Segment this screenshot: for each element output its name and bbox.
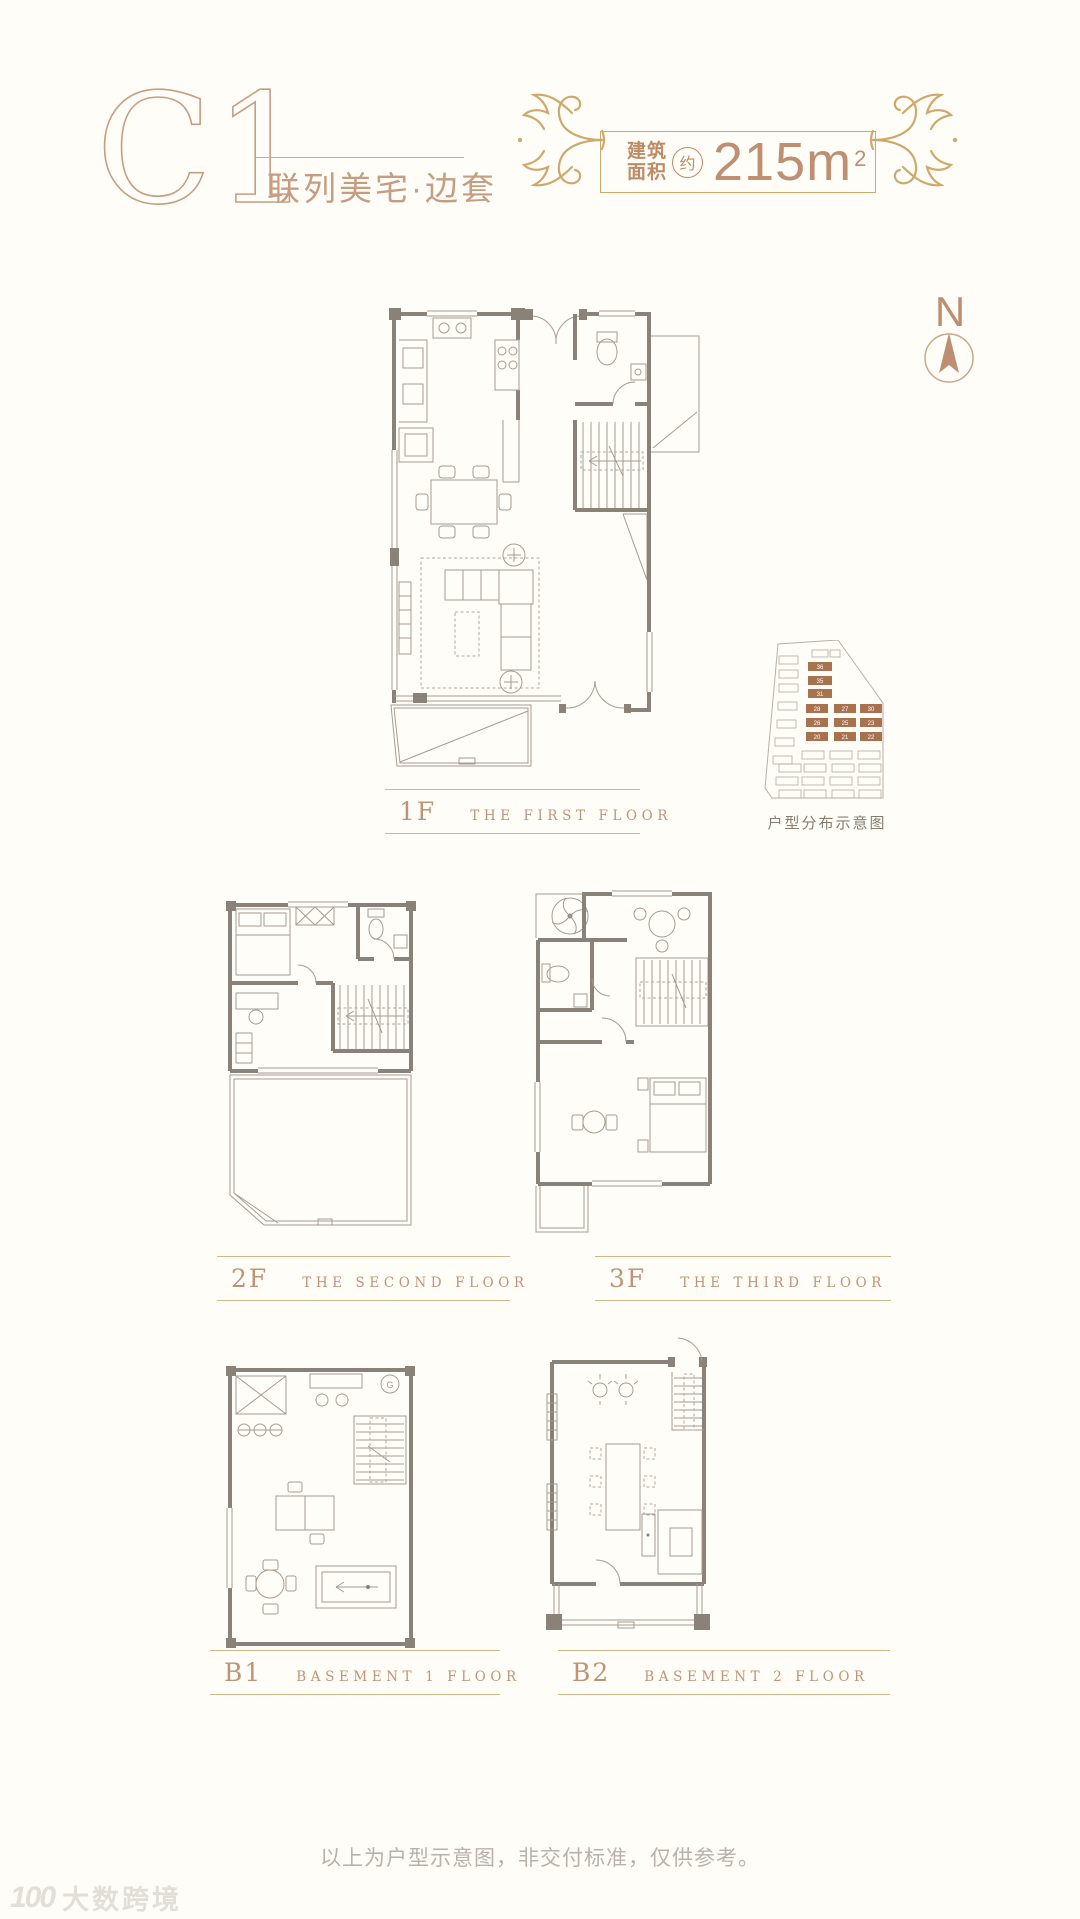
floor-name: THE SECOND FLOOR <box>302 1275 528 1291</box>
floor-label-1f: 1F THE FIRST FLOOR <box>385 789 640 834</box>
watermark: 100 大数跨境 <box>10 1878 182 1917</box>
floor-name: BASEMENT 1 FLOOR <box>296 1669 521 1685</box>
svg-text:25: 25 <box>842 721 849 727</box>
floor-name: BASEMENT 2 FLOOR <box>644 1669 869 1685</box>
floor-plan-2f <box>218 893 423 1243</box>
label-rule-bottom <box>595 1300 891 1301</box>
floor-plan-1f <box>383 252 713 767</box>
label-rule-bottom <box>210 1694 500 1695</box>
svg-text:23: 23 <box>868 721 875 727</box>
label-rule-bottom <box>385 833 640 834</box>
svg-text:21: 21 <box>842 735 849 741</box>
floor-code: B2 <box>572 1658 610 1687</box>
label-rule-bottom <box>558 1694 890 1695</box>
svg-text:22: 22 <box>868 735 875 741</box>
label-rule-bottom <box>217 1300 510 1301</box>
floor-code: B1 <box>224 1658 262 1687</box>
ornament-left-flourish <box>512 83 607 198</box>
svg-text:26: 26 <box>814 721 821 727</box>
title-divider-line <box>256 157 464 158</box>
watermark-text: 大数跨境 <box>62 1878 182 1917</box>
floor-label-3f: 3F THE THIRD FLOOR <box>595 1256 891 1301</box>
floor-label-b2: B2 BASEMENT 2 FLOOR <box>558 1650 890 1695</box>
area-approx-circle: 约 <box>672 147 703 178</box>
site-map: 36 35 31 28 27 30 26 25 23 20 21 22 <box>762 640 892 806</box>
area-badge: 建筑 面积 约 215m2 <box>600 131 876 193</box>
floor-label-b1: B1 BASEMENT 1 FLOOR <box>210 1650 500 1695</box>
svg-text:27: 27 <box>842 707 849 713</box>
floor-plan-b2 <box>522 1332 722 1684</box>
floor-label-2f: 2F THE SECOND FLOOR <box>217 1256 510 1301</box>
svg-text:30: 30 <box>868 707 875 713</box>
svg-text:31: 31 <box>817 692 824 698</box>
area-superscript: 2 <box>854 146 867 171</box>
unit-subtitle: 联列美宅·边套 <box>267 162 497 210</box>
floor-code: 1F <box>399 797 436 826</box>
disclaimer-text: 以上为户型示意图，非交付标准，仅供参考。 <box>0 1842 1080 1872</box>
area-label-line2: 面积 <box>627 162 667 183</box>
site-map-caption: 户型分布示意图 <box>757 812 897 833</box>
area-label: 建筑 面积 <box>627 141 667 183</box>
svg-text:28: 28 <box>814 707 821 713</box>
floor-plan-b1: G <box>218 1358 423 1656</box>
area-label-line1: 建筑 <box>627 141 667 162</box>
area-value: 215m2 <box>713 135 867 189</box>
svg-text:35: 35 <box>817 679 824 685</box>
floor-name: THE THIRD FLOOR <box>680 1275 886 1291</box>
compass-icon <box>922 328 978 384</box>
svg-text:G: G <box>386 1380 393 1390</box>
ornament-right-flourish <box>868 83 963 198</box>
svg-text:20: 20 <box>814 735 821 741</box>
svg-text:36: 36 <box>817 665 824 671</box>
floor-code: 2F <box>231 1264 268 1293</box>
floor-code: 3F <box>609 1264 646 1293</box>
floor-plan-3f <box>522 882 717 1250</box>
watermark-logo: 100 <box>10 1881 54 1915</box>
floor-name: THE FIRST FLOOR <box>470 808 672 824</box>
